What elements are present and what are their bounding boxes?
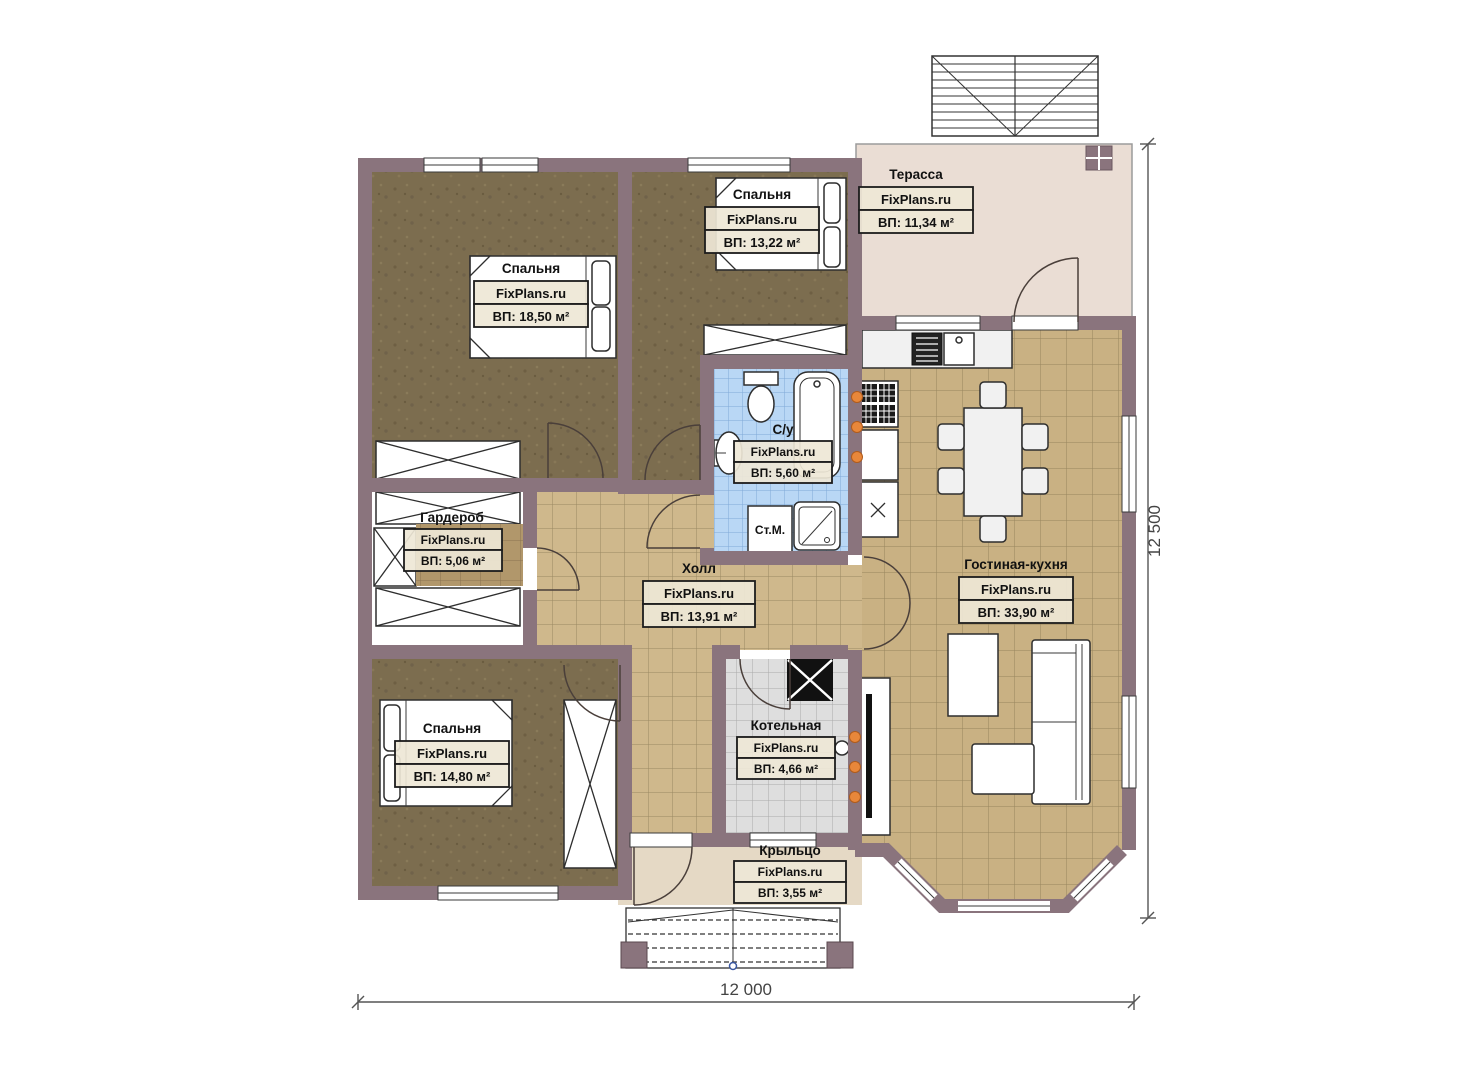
chair-icon bbox=[1022, 468, 1048, 494]
radiator-icon bbox=[850, 762, 861, 773]
porch-post-icon bbox=[621, 942, 647, 968]
chair-icon bbox=[938, 468, 964, 494]
porch-post-icon bbox=[827, 942, 853, 968]
tv-icon bbox=[866, 694, 872, 818]
door-opening bbox=[630, 833, 692, 847]
room-name: Котельная bbox=[751, 718, 822, 733]
room-name: Гостиная-кухня bbox=[964, 557, 1067, 572]
watermark: FixPlans.ru bbox=[981, 582, 1051, 597]
terrace-column-icon bbox=[1086, 146, 1112, 170]
chair-icon bbox=[1022, 424, 1048, 450]
watermark: FixPlans.ru bbox=[881, 192, 951, 207]
closet-icon bbox=[704, 325, 846, 355]
terrace-stairs-icon bbox=[932, 56, 1098, 136]
room-name: Терасса bbox=[889, 167, 943, 182]
watermark: FixPlans.ru bbox=[496, 286, 566, 301]
room-area: ВП: 3,55 м² bbox=[758, 886, 822, 900]
room-name: Спальня bbox=[502, 261, 560, 276]
washing-machine-label: Ст.М. bbox=[755, 523, 785, 537]
watermark: FixPlans.ru bbox=[421, 533, 486, 547]
room-area: ВП: 33,90 м² bbox=[978, 605, 1055, 620]
dishwasher-icon bbox=[858, 482, 898, 537]
dimension-node bbox=[730, 963, 737, 970]
radiator-icon bbox=[850, 732, 861, 743]
window bbox=[1122, 416, 1136, 512]
door-opening bbox=[1012, 316, 1078, 330]
room-name: Крыльцо bbox=[759, 843, 820, 858]
window bbox=[1122, 696, 1136, 788]
watermark: FixPlans.ru bbox=[727, 212, 797, 227]
kitchen-counter bbox=[862, 330, 1012, 368]
closet-icon bbox=[564, 700, 616, 868]
chair-icon bbox=[980, 516, 1006, 542]
room-area: ВП: 5,06 м² bbox=[421, 554, 485, 568]
room-area: ВП: 13,22 м² bbox=[724, 235, 801, 250]
room-name: С/у bbox=[772, 422, 794, 437]
kitchen-cabinet bbox=[858, 430, 898, 480]
window bbox=[688, 158, 790, 172]
radiator-icon bbox=[850, 792, 861, 803]
window bbox=[424, 158, 480, 172]
boiler-icon bbox=[835, 741, 849, 755]
washing-machine-icon: Ст.М. bbox=[748, 506, 792, 552]
dimension-width-label: 12 000 bbox=[720, 980, 772, 999]
floor-plan-page: Ст.М. bbox=[0, 0, 1473, 1080]
closet-icon bbox=[376, 588, 520, 626]
window bbox=[896, 316, 980, 330]
coffee-table-icon bbox=[948, 634, 998, 716]
dimension-right: 12 500 bbox=[1140, 138, 1164, 924]
watermark: FixPlans.ru bbox=[751, 445, 816, 459]
room-area: ВП: 11,34 м² bbox=[878, 215, 955, 230]
watermark: FixPlans.ru bbox=[664, 586, 734, 601]
window bbox=[482, 158, 538, 172]
dimension-height-label: 12 500 bbox=[1145, 505, 1164, 557]
watermark: FixPlans.ru bbox=[417, 746, 487, 761]
porch-steps-icon bbox=[621, 908, 853, 970]
room-name: Спальня bbox=[423, 721, 481, 736]
room-area: ВП: 18,50 м² bbox=[493, 309, 570, 324]
watermark: FixPlans.ru bbox=[758, 865, 823, 879]
room-area: ВП: 4,66 м² bbox=[754, 762, 818, 776]
shower-icon bbox=[794, 502, 840, 550]
chair-icon bbox=[938, 424, 964, 450]
room-label-boiler-room: Котельная FixPlans.ru ВП: 4,66 м² bbox=[737, 718, 835, 779]
room-name: Гардероб bbox=[420, 510, 484, 525]
room-name: Холл bbox=[682, 561, 716, 576]
radiator-icon bbox=[852, 422, 863, 433]
chair-icon bbox=[980, 382, 1006, 408]
tv-stand-icon bbox=[858, 678, 890, 835]
dining-table-icon bbox=[964, 408, 1022, 516]
room-area: ВП: 5,60 м² bbox=[751, 466, 815, 480]
floor-plan: Ст.М. bbox=[0, 0, 1473, 1080]
room-label-living-kitchen: Гостиная-кухня FixPlans.ru ВП: 33,90 м² bbox=[959, 557, 1073, 623]
room-area: ВП: 14,80 м² bbox=[414, 769, 491, 784]
dimension-bottom: 12 000 bbox=[352, 980, 1140, 1010]
chimney-shaft-icon bbox=[788, 660, 832, 700]
radiator-icon bbox=[852, 392, 863, 403]
window bbox=[438, 886, 558, 900]
closet-icon bbox=[376, 441, 520, 479]
stove-icon bbox=[858, 381, 898, 427]
room-area: ВП: 13,91 м² bbox=[661, 609, 738, 624]
watermark: FixPlans.ru bbox=[754, 741, 819, 755]
room-name: Спальня bbox=[733, 187, 791, 202]
radiator-icon bbox=[852, 452, 863, 463]
